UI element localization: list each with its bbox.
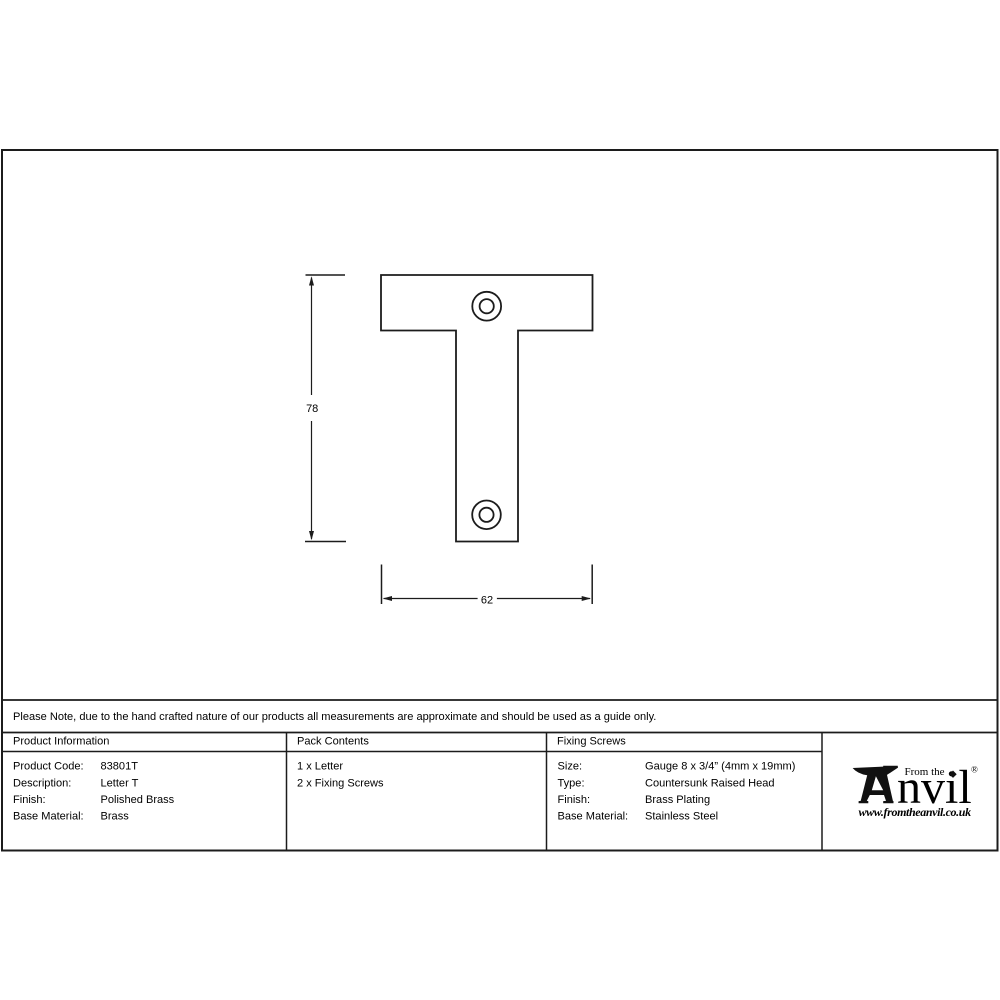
svg-text:Base Material:: Base Material: xyxy=(558,811,629,823)
svg-text:Polished Brass: Polished Brass xyxy=(101,794,175,806)
svg-text:2 x Fixing Screws: 2 x Fixing Screws xyxy=(297,778,384,790)
svg-text:Description:: Description: xyxy=(13,778,71,790)
svg-text:Letter T: Letter T xyxy=(101,778,139,790)
svg-text:Size:: Size: xyxy=(558,761,583,773)
svg-text:Pack Contents: Pack Contents xyxy=(297,736,369,748)
svg-text:Please Note, due to the hand c: Please Note, due to the hand crafted nat… xyxy=(13,711,656,723)
svg-text:1 x Letter: 1 x Letter xyxy=(297,761,343,773)
svg-text:From the: From the xyxy=(905,766,945,778)
svg-text:Finish:: Finish: xyxy=(558,794,591,806)
svg-text:www.fromtheanvil.co.uk: www.fromtheanvil.co.uk xyxy=(859,805,972,819)
svg-text:Fixing Screws: Fixing Screws xyxy=(557,736,626,748)
svg-text:Finish:: Finish: xyxy=(13,794,46,806)
svg-text:Gauge 8 x 3/4” (4mm x 19mm): Gauge 8 x 3/4” (4mm x 19mm) xyxy=(645,761,795,773)
svg-text:Product Information: Product Information xyxy=(13,736,109,748)
svg-text:83801T: 83801T xyxy=(101,761,139,773)
svg-text:®: ® xyxy=(971,765,978,775)
svg-text:78: 78 xyxy=(306,403,318,415)
svg-text:62: 62 xyxy=(481,594,493,606)
svg-text:Stainless Steel: Stainless Steel xyxy=(645,811,718,823)
svg-text:Type:: Type: xyxy=(558,778,585,790)
svg-text:Base Material:: Base Material: xyxy=(13,811,84,823)
svg-text:Brass Plating: Brass Plating xyxy=(645,794,710,806)
svg-text:Brass: Brass xyxy=(101,811,130,823)
svg-text:Countersunk Raised Head: Countersunk Raised Head xyxy=(645,778,775,790)
svg-text:Product Code:: Product Code: xyxy=(13,761,84,773)
